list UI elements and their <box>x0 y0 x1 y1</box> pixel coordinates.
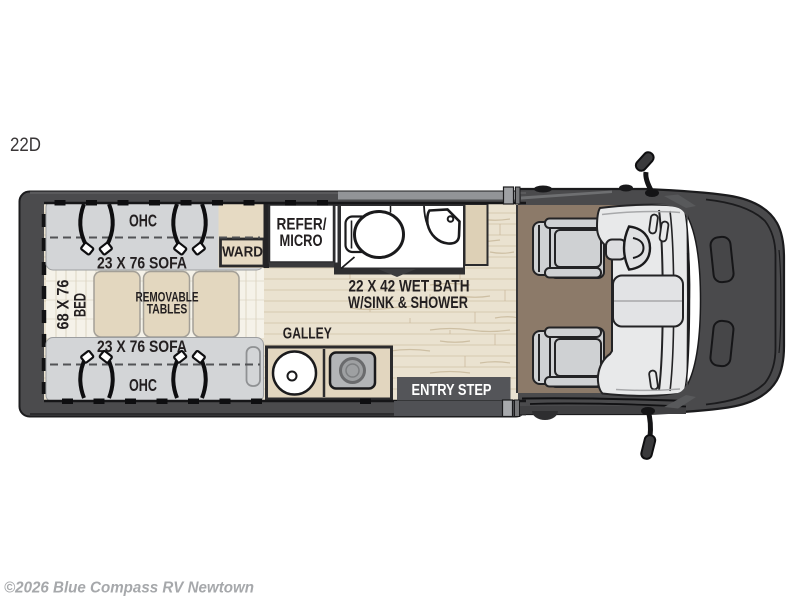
svg-text:OHC: OHC <box>129 211 157 231</box>
svg-text:TABLES: TABLES <box>147 302 188 317</box>
svg-text:23 X 76 SOFA: 23 X 76 SOFA <box>97 255 187 273</box>
svg-text:BED: BED <box>72 293 90 317</box>
svg-text:WARD: WARD <box>222 244 263 261</box>
svg-text:REFER/: REFER/ <box>277 216 327 234</box>
svg-text:22D: 22D <box>10 134 41 156</box>
svg-text:OHC: OHC <box>129 375 157 395</box>
svg-text:W/SINK & SHOWER: W/SINK & SHOWER <box>348 294 468 312</box>
svg-text:ENTRY STEP: ENTRY STEP <box>412 382 492 399</box>
svg-text:23 X 76 SOFA: 23 X 76 SOFA <box>97 338 187 356</box>
svg-text:©2026 Blue Compass RV Newtown: ©2026 Blue Compass RV Newtown <box>4 580 254 597</box>
svg-text:68 X 76: 68 X 76 <box>55 280 73 330</box>
svg-text:GALLEY: GALLEY <box>283 326 332 343</box>
svg-text:22 X 42 WET BATH: 22 X 42 WET BATH <box>349 277 470 295</box>
svg-text:MICRO: MICRO <box>280 232 323 250</box>
